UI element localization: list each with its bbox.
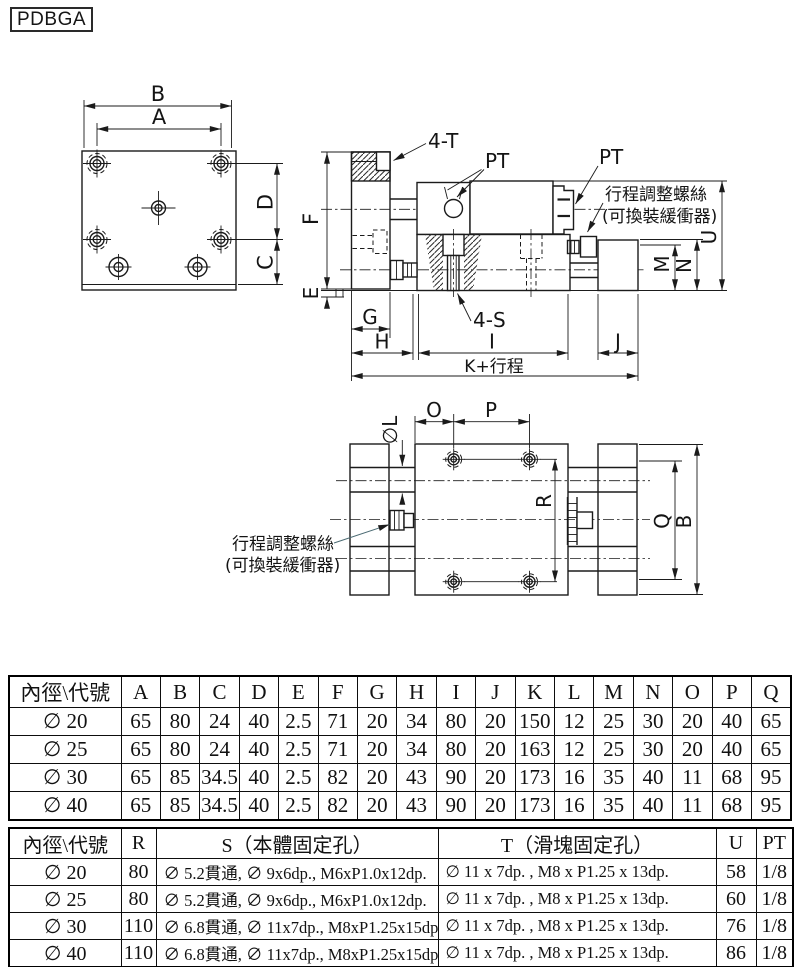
cell: ∅ 40	[9, 792, 121, 821]
cell: 34.5	[200, 792, 239, 821]
cell: 35	[594, 764, 633, 792]
column-header: F	[318, 676, 357, 708]
cell: ∅ 5.2貫通, ∅ 9x6dp., M6xP1.0x12dp.	[156, 859, 438, 886]
dim-label-k-stroke: K+行程	[464, 357, 523, 377]
cell: 82	[318, 764, 357, 792]
note-stroke-adjust-2: (可換裝緩衝器)	[602, 207, 717, 227]
cell: 80	[436, 736, 475, 764]
stroke-adjust-screw	[581, 237, 597, 258]
column-header: U	[716, 828, 756, 859]
note-stroke-adjust-1: 行程調整螺絲	[232, 535, 334, 555]
dim-label-d: D	[254, 194, 278, 210]
t-hole-boss	[377, 152, 391, 171]
cell: 34	[397, 708, 436, 736]
cell: ∅ 30	[9, 764, 121, 792]
cell: 30	[633, 736, 672, 764]
cell: 24	[200, 708, 239, 736]
cell: 173	[515, 764, 554, 792]
cell: 163	[515, 736, 554, 764]
cell: 80	[160, 736, 199, 764]
cell: 20	[476, 764, 515, 792]
dim-label-p: P	[485, 398, 497, 422]
column-header: O	[673, 676, 712, 708]
cell: 65	[121, 708, 160, 736]
cell: 34.5	[200, 764, 239, 792]
cell: ∅ 25	[9, 736, 121, 764]
cell: ∅ 20	[9, 708, 121, 736]
cell: ∅ 11 x 7dp. , M8 x P1.25 x 13dp.	[438, 859, 716, 886]
cell: 11	[673, 792, 712, 821]
cell: 20	[357, 708, 396, 736]
cell: 90	[436, 792, 475, 821]
dim-label-q: Q	[650, 513, 674, 529]
cell: ∅ 6.8貫通, ∅ 11x7dp., M8xP1.25x15dp.	[156, 940, 438, 967]
cell: ∅ 6.8貫通, ∅ 11x7dp., M8xP1.25x15dp.	[156, 913, 438, 940]
column-header: E	[279, 676, 318, 708]
header-row: 內徑\代號ABCDEFGHIJKLMNOPQ	[9, 676, 791, 708]
cell: 2.5	[279, 792, 318, 821]
cell: 65	[752, 708, 792, 736]
cell: 35	[594, 792, 633, 821]
cell: 71	[318, 736, 357, 764]
cell: 82	[318, 792, 357, 821]
cell: ∅ 11 x 7dp. , M8 x P1.25 x 13dp.	[438, 940, 716, 967]
cell: 43	[397, 764, 436, 792]
cell: 2.5	[279, 708, 318, 736]
column-header: B	[160, 676, 199, 708]
dimension-table: 內徑\代號ABCDEFGHIJKLMNOPQ∅ 20658024402.5712…	[8, 675, 792, 821]
cell: 20	[673, 736, 712, 764]
column-header: Q	[752, 676, 792, 708]
column-header: 內徑\代號	[9, 828, 121, 859]
cell: 58	[716, 859, 756, 886]
cell: 16	[554, 792, 593, 821]
top-view: O P ∅L R Q B 行程調整螺絲 (可換裝緩衝器)	[225, 398, 703, 595]
column-header: R	[121, 828, 156, 859]
dim-label-b-top: B	[672, 515, 696, 529]
cell: 80	[436, 708, 475, 736]
cell: 12	[554, 708, 593, 736]
cell: 2.5	[279, 764, 318, 792]
cell: 80	[121, 886, 156, 913]
cell: 2.5	[279, 736, 318, 764]
cell: 1/8	[756, 940, 793, 967]
column-header: G	[357, 676, 396, 708]
cell: 1/8	[756, 886, 793, 913]
front-view: B A D C	[82, 82, 283, 290]
cell: 86	[716, 940, 756, 967]
cell: 65	[752, 736, 792, 764]
cylinder-tube	[470, 181, 553, 234]
callout-4T: 4-T	[428, 129, 459, 153]
data-row: ∅ 20658024402.57120348020150122530204065	[9, 708, 791, 736]
data-row: ∅ 2080∅ 5.2貫通, ∅ 9x6dp., M6xP1.0x12dp.∅ …	[9, 859, 793, 886]
column-header: J	[476, 676, 515, 708]
cell: 11	[673, 764, 712, 792]
column-header: K	[515, 676, 554, 708]
dim-label-h: H	[374, 330, 389, 354]
dim-label-c: C	[254, 255, 278, 270]
datasheet-page: PDBGA	[0, 0, 800, 967]
cell: 25	[594, 736, 633, 764]
cell: 40	[239, 736, 278, 764]
column-header: D	[239, 676, 278, 708]
cell: 1/8	[756, 859, 793, 886]
cell: ∅ 25	[9, 886, 121, 913]
cell: 16	[554, 764, 593, 792]
cell: 20	[357, 736, 396, 764]
cell: ∅ 11 x 7dp. , M8 x P1.25 x 13dp.	[438, 913, 716, 940]
cell: ∅ 5.2貫通, ∅ 9x6dp., M6xP1.0x12dp.	[156, 886, 438, 913]
header-row: 內徑\代號RS（本體固定孔）T（滑塊固定孔）UPT	[9, 828, 793, 859]
cell: 34	[397, 736, 436, 764]
cell: 173	[515, 792, 554, 821]
cell: ∅ 40	[9, 940, 121, 967]
column-header: PT	[756, 828, 793, 859]
cell: 65	[121, 792, 160, 821]
callout-PT-right: PT	[599, 145, 624, 169]
column-header: 內徑\代號	[9, 676, 121, 708]
callout-PT-left: PT	[485, 149, 510, 173]
cell: 20	[476, 708, 515, 736]
cell: 25	[594, 708, 633, 736]
column-header: N	[633, 676, 672, 708]
column-header: H	[397, 676, 436, 708]
cell: 90	[436, 764, 475, 792]
dim-label-rod-diameter: ∅L	[378, 415, 402, 444]
dim-label-m: M	[650, 255, 674, 272]
column-header: T（滑塊固定孔）	[438, 828, 716, 859]
cell: 40	[712, 736, 751, 764]
cell: 76	[716, 913, 756, 940]
cell: 150	[515, 708, 554, 736]
dim-label-u: U	[697, 230, 721, 245]
data-row: ∅ 25658024402.57120348020163122530204065	[9, 736, 791, 764]
note-stroke-adjust-1: 行程調整螺絲	[605, 185, 707, 205]
cell: 68	[712, 764, 751, 792]
dim-label-r: R	[532, 494, 556, 508]
data-row: ∅ 30658534.5402.582204390201731635401168…	[9, 764, 791, 792]
note-stroke-adjust-2: (可換裝緩衝器)	[225, 556, 340, 576]
side-view: 4-T PT PT 行程調整螺絲 (可換裝緩衝器) 4-S F E G	[299, 129, 727, 381]
cell: 110	[121, 913, 156, 940]
column-header: M	[594, 676, 633, 708]
cell: 40	[712, 708, 751, 736]
cell: 30	[633, 708, 672, 736]
cylinder-cap	[553, 186, 574, 234]
cell: ∅ 20	[9, 859, 121, 886]
cell: 71	[318, 708, 357, 736]
cell: 95	[752, 764, 792, 792]
dim-label-o: O	[426, 398, 442, 422]
cell: ∅ 11 x 7dp. , M8 x P1.25 x 13dp.	[438, 886, 716, 913]
data-row: ∅ 40110∅ 6.8貫通, ∅ 11x7dp., M8xP1.25x15dp…	[9, 940, 793, 967]
cell: 95	[752, 792, 792, 821]
data-row: ∅ 2580∅ 5.2貫通, ∅ 9x6dp., M6xP1.0x12dp.∅ …	[9, 886, 793, 913]
dim-label-f: F	[299, 213, 323, 225]
slider-end-block	[598, 240, 638, 291]
dim-label-g: G	[362, 305, 378, 329]
callout-4S: 4-S	[473, 308, 506, 332]
cell: 110	[121, 940, 156, 967]
adjust-screw-head-right	[577, 512, 593, 529]
column-header: P	[712, 676, 751, 708]
data-row: ∅ 40658534.5402.582204390201731635401168…	[9, 792, 791, 821]
dim-label-e: E	[299, 287, 323, 300]
dim-label-j: J	[613, 330, 621, 354]
dim-label-a: A	[152, 105, 167, 129]
cell: 85	[160, 764, 199, 792]
cell: 60	[716, 886, 756, 913]
cell: 65	[121, 736, 160, 764]
cell: 20	[357, 764, 396, 792]
cell: 40	[633, 792, 672, 821]
cell: 65	[121, 764, 160, 792]
cell: 1/8	[756, 913, 793, 940]
plate-outline	[82, 151, 236, 290]
column-header: S（本體固定孔）	[156, 828, 438, 859]
technical-drawings: B A D C	[0, 0, 800, 665]
cell: 20	[476, 736, 515, 764]
cell: 20	[476, 792, 515, 821]
dim-label-b: B	[151, 82, 165, 106]
column-header: A	[121, 676, 160, 708]
column-header: L	[554, 676, 593, 708]
dim-label-i: I	[489, 330, 495, 354]
cell: ∅ 30	[9, 913, 121, 940]
cell: 20	[357, 792, 396, 821]
cell: 40	[633, 764, 672, 792]
cell: 80	[121, 859, 156, 886]
cell: 12	[554, 736, 593, 764]
cell: 80	[160, 708, 199, 736]
cell: 24	[200, 736, 239, 764]
adjust-screw-head	[390, 511, 404, 531]
column-header: I	[436, 676, 475, 708]
cell: 40	[239, 708, 278, 736]
cell: 40	[239, 764, 278, 792]
column-header: C	[200, 676, 239, 708]
cell: 68	[712, 792, 751, 821]
cell: 20	[673, 708, 712, 736]
dim-label-n: N	[672, 258, 696, 273]
mounting-hole-table: 內徑\代號RS（本體固定孔）T（滑塊固定孔）UPT∅ 2080∅ 5.2貫通, …	[8, 827, 794, 967]
cell: 43	[397, 792, 436, 821]
cell: 40	[239, 792, 278, 821]
cell: 85	[160, 792, 199, 821]
data-row: ∅ 30110∅ 6.8貫通, ∅ 11x7dp., M8xP1.25x15dp…	[9, 913, 793, 940]
